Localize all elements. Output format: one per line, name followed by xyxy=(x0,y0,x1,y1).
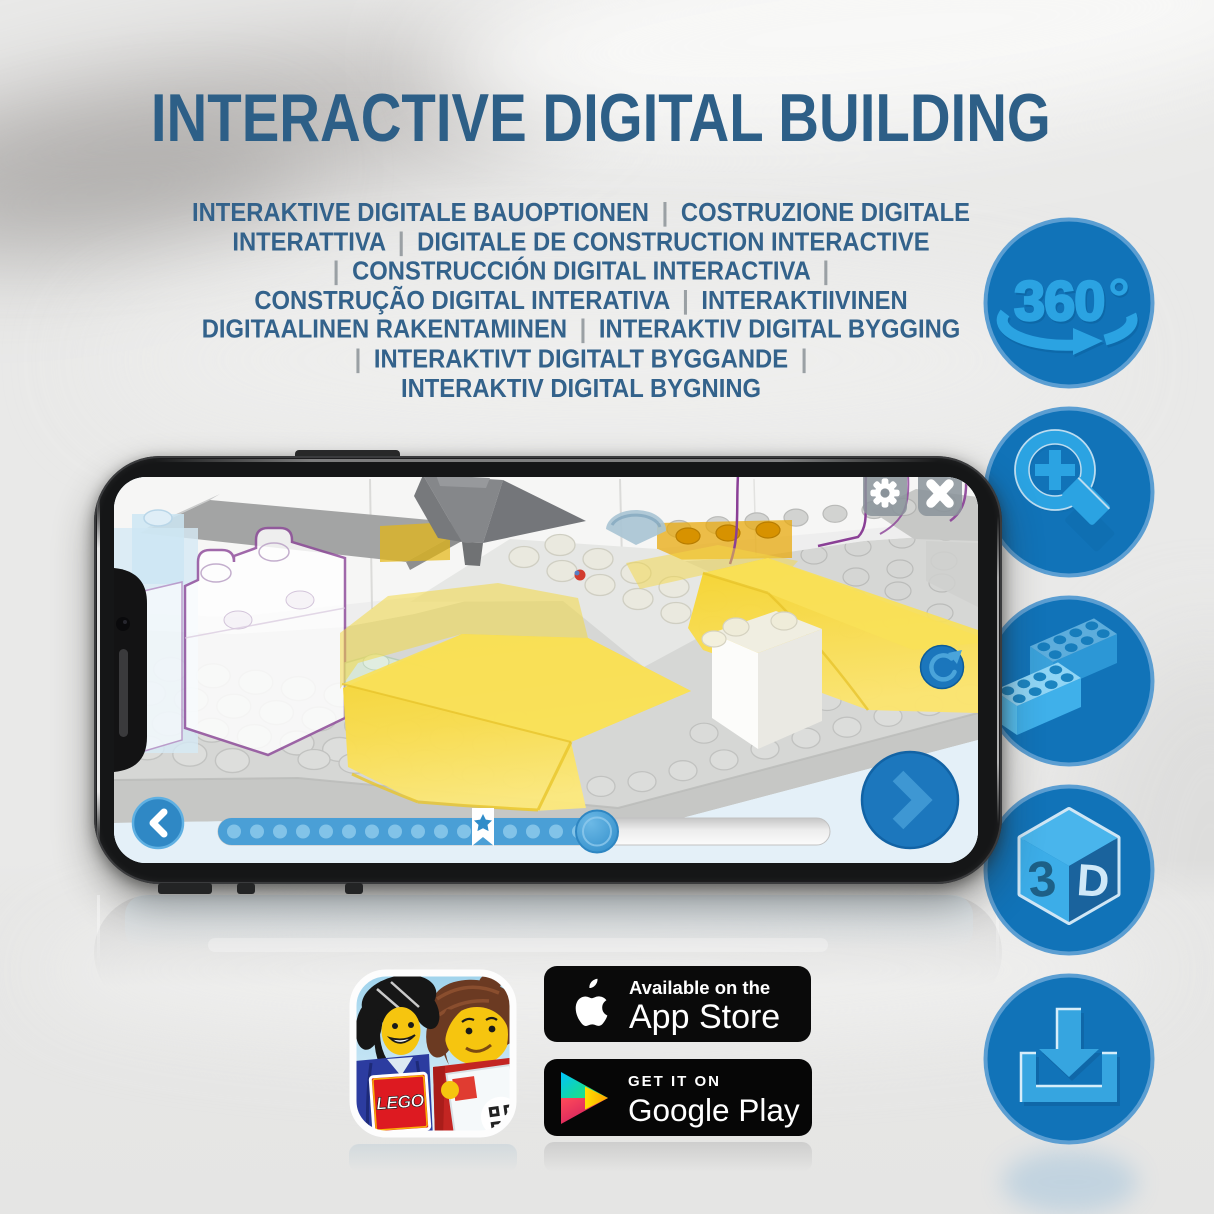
svg-text:App Store: App Store xyxy=(629,998,780,1036)
svg-text:3: 3 xyxy=(1025,850,1059,909)
svg-text:Available on the: Available on the xyxy=(629,977,770,998)
svg-text:LEGO: LEGO xyxy=(375,1090,425,1113)
svg-text:GET IT ON: GET IT ON xyxy=(628,1073,721,1090)
svg-text:360: 360 xyxy=(1014,269,1104,332)
svg-text:D: D xyxy=(1075,854,1111,907)
svg-text:Google Play: Google Play xyxy=(628,1092,800,1128)
